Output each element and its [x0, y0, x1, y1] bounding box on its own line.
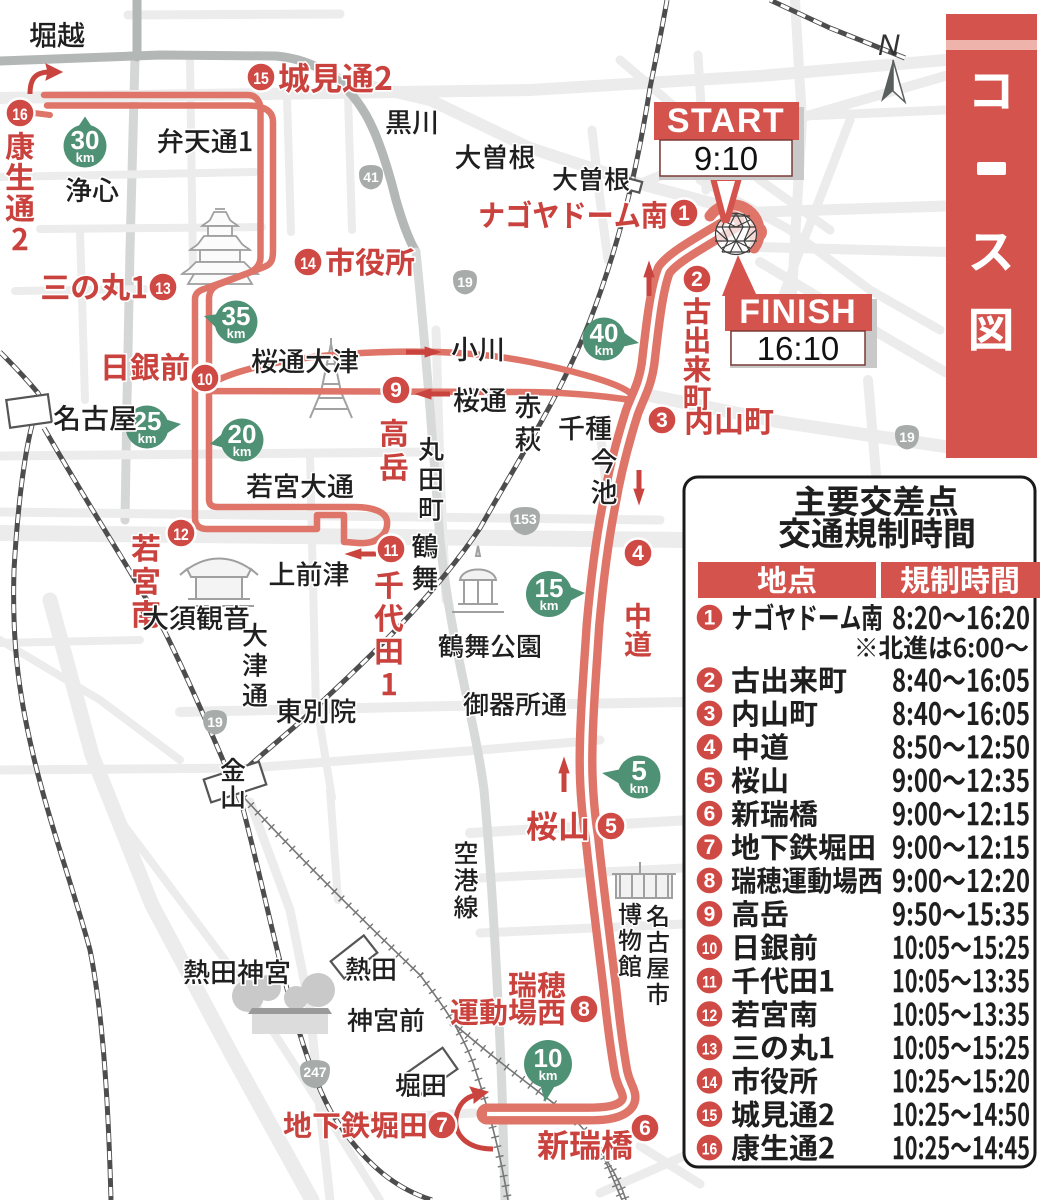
- svg-text:15: 15: [702, 1107, 718, 1126]
- svg-text:19: 19: [207, 714, 223, 730]
- svg-text:15: 15: [253, 70, 269, 89]
- svg-text:11: 11: [702, 973, 717, 992]
- svg-text:153: 153: [513, 511, 537, 527]
- svg-text:16:10: 16:10: [757, 330, 840, 367]
- svg-text:19: 19: [899, 429, 915, 445]
- svg-text:4: 4: [632, 542, 644, 565]
- svg-text:2: 2: [704, 669, 716, 692]
- svg-text:9: 9: [390, 379, 402, 402]
- svg-text:5: 5: [605, 815, 617, 838]
- svg-text:km: km: [540, 598, 559, 613]
- svg-text:km: km: [227, 326, 246, 341]
- svg-text:START: START: [667, 102, 785, 140]
- svg-text:11: 11: [384, 542, 399, 561]
- svg-text:9:10: 9:10: [694, 140, 758, 177]
- svg-text:14: 14: [702, 1074, 718, 1093]
- svg-text:FINISH: FINISH: [739, 293, 856, 331]
- svg-text:1: 1: [678, 202, 690, 225]
- svg-text:10: 10: [702, 940, 717, 959]
- svg-text:3: 3: [656, 409, 668, 432]
- svg-text:3: 3: [704, 702, 716, 725]
- svg-text:16: 16: [12, 106, 28, 125]
- svg-text:7: 7: [704, 836, 716, 859]
- svg-text:13: 13: [702, 1040, 718, 1059]
- svg-text:N: N: [878, 29, 900, 62]
- svg-text:2: 2: [691, 268, 703, 291]
- svg-text:41: 41: [363, 169, 379, 185]
- svg-text:10: 10: [197, 371, 212, 390]
- svg-text:12: 12: [173, 526, 189, 545]
- svg-text:km: km: [630, 781, 649, 796]
- svg-text:8: 8: [578, 998, 590, 1021]
- svg-text:5: 5: [704, 769, 716, 792]
- svg-text:12: 12: [702, 1007, 718, 1026]
- svg-text:16: 16: [702, 1140, 718, 1159]
- svg-text:km: km: [76, 150, 95, 165]
- svg-text:6: 6: [704, 803, 716, 826]
- svg-text:7: 7: [436, 1114, 448, 1137]
- svg-text:6: 6: [639, 1117, 651, 1140]
- svg-text:km: km: [595, 343, 614, 358]
- svg-text:km: km: [539, 1068, 558, 1083]
- svg-text:14: 14: [300, 255, 316, 274]
- svg-text:13: 13: [155, 280, 171, 299]
- svg-text:9: 9: [704, 903, 716, 926]
- svg-text:8: 8: [704, 869, 716, 892]
- svg-text:1: 1: [704, 607, 716, 630]
- svg-text:247: 247: [303, 1064, 327, 1080]
- svg-text:4: 4: [704, 736, 716, 759]
- svg-text:km: km: [138, 431, 157, 446]
- svg-text:km: km: [233, 444, 252, 459]
- svg-text:19: 19: [457, 274, 473, 290]
